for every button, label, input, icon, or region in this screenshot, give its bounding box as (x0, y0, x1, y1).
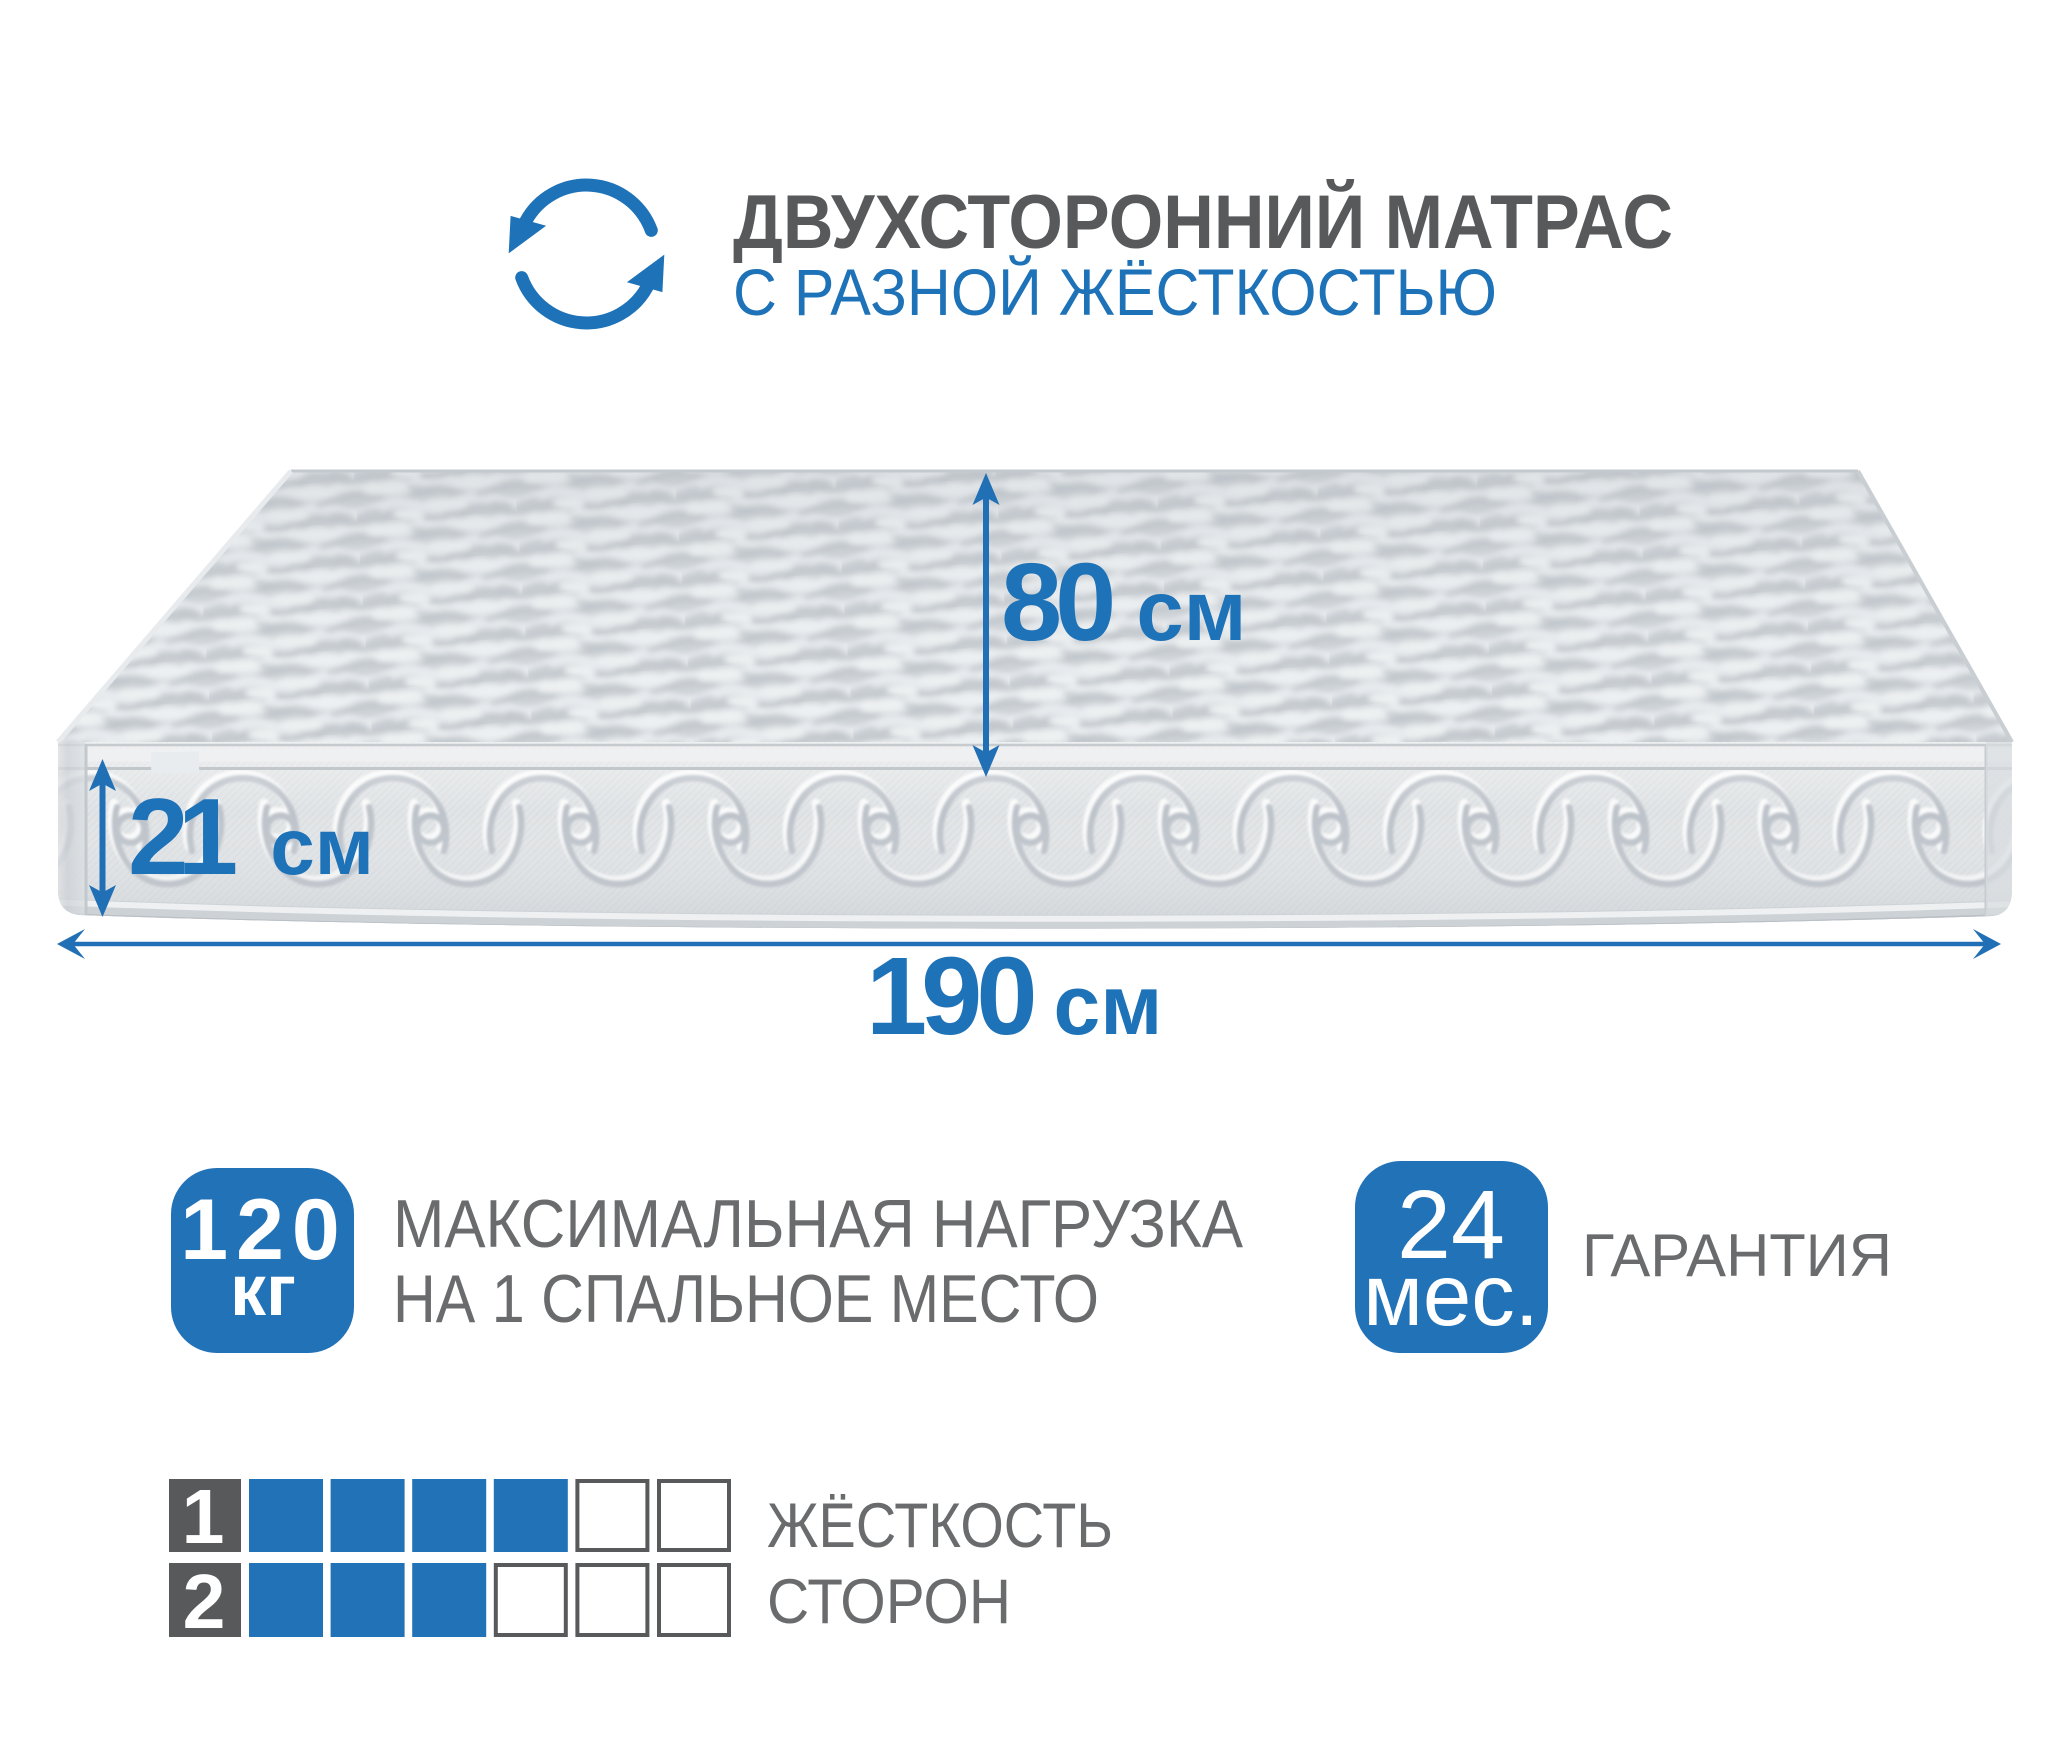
svg-text:МАКСИМАЛЬНАЯ НАГРУЗКА: МАКСИМАЛЬНАЯ НАГРУЗКА (393, 1186, 1244, 1262)
svg-text:2: 2 (183, 1559, 226, 1645)
svg-text:СТОРОН: СТОРОН (767, 1567, 1011, 1637)
svg-text:мес.: мес. (1363, 1247, 1539, 1344)
svg-text:ГАРАНТИЯ: ГАРАНТИЯ (1582, 1222, 1892, 1289)
svg-text:кг: кг (230, 1251, 296, 1331)
svg-text:НА 1 СПАЛЬНОЕ МЕСТО: НА 1 СПАЛЬНОЕ МЕСТО (393, 1261, 1099, 1337)
svg-text:С РАЗНОЙ ЖЁСТКОСТЬЮ: С РАЗНОЙ ЖЁСТКОСТЬЮ (733, 254, 1497, 329)
svg-text:1: 1 (182, 1474, 225, 1560)
svg-text:ДВУХСТОРОННИЙ МАТРАС: ДВУХСТОРОННИЙ МАТРАС (733, 179, 1673, 265)
svg-text:ЖЁСТКОСТЬ: ЖЁСТКОСТЬ (767, 1491, 1113, 1561)
